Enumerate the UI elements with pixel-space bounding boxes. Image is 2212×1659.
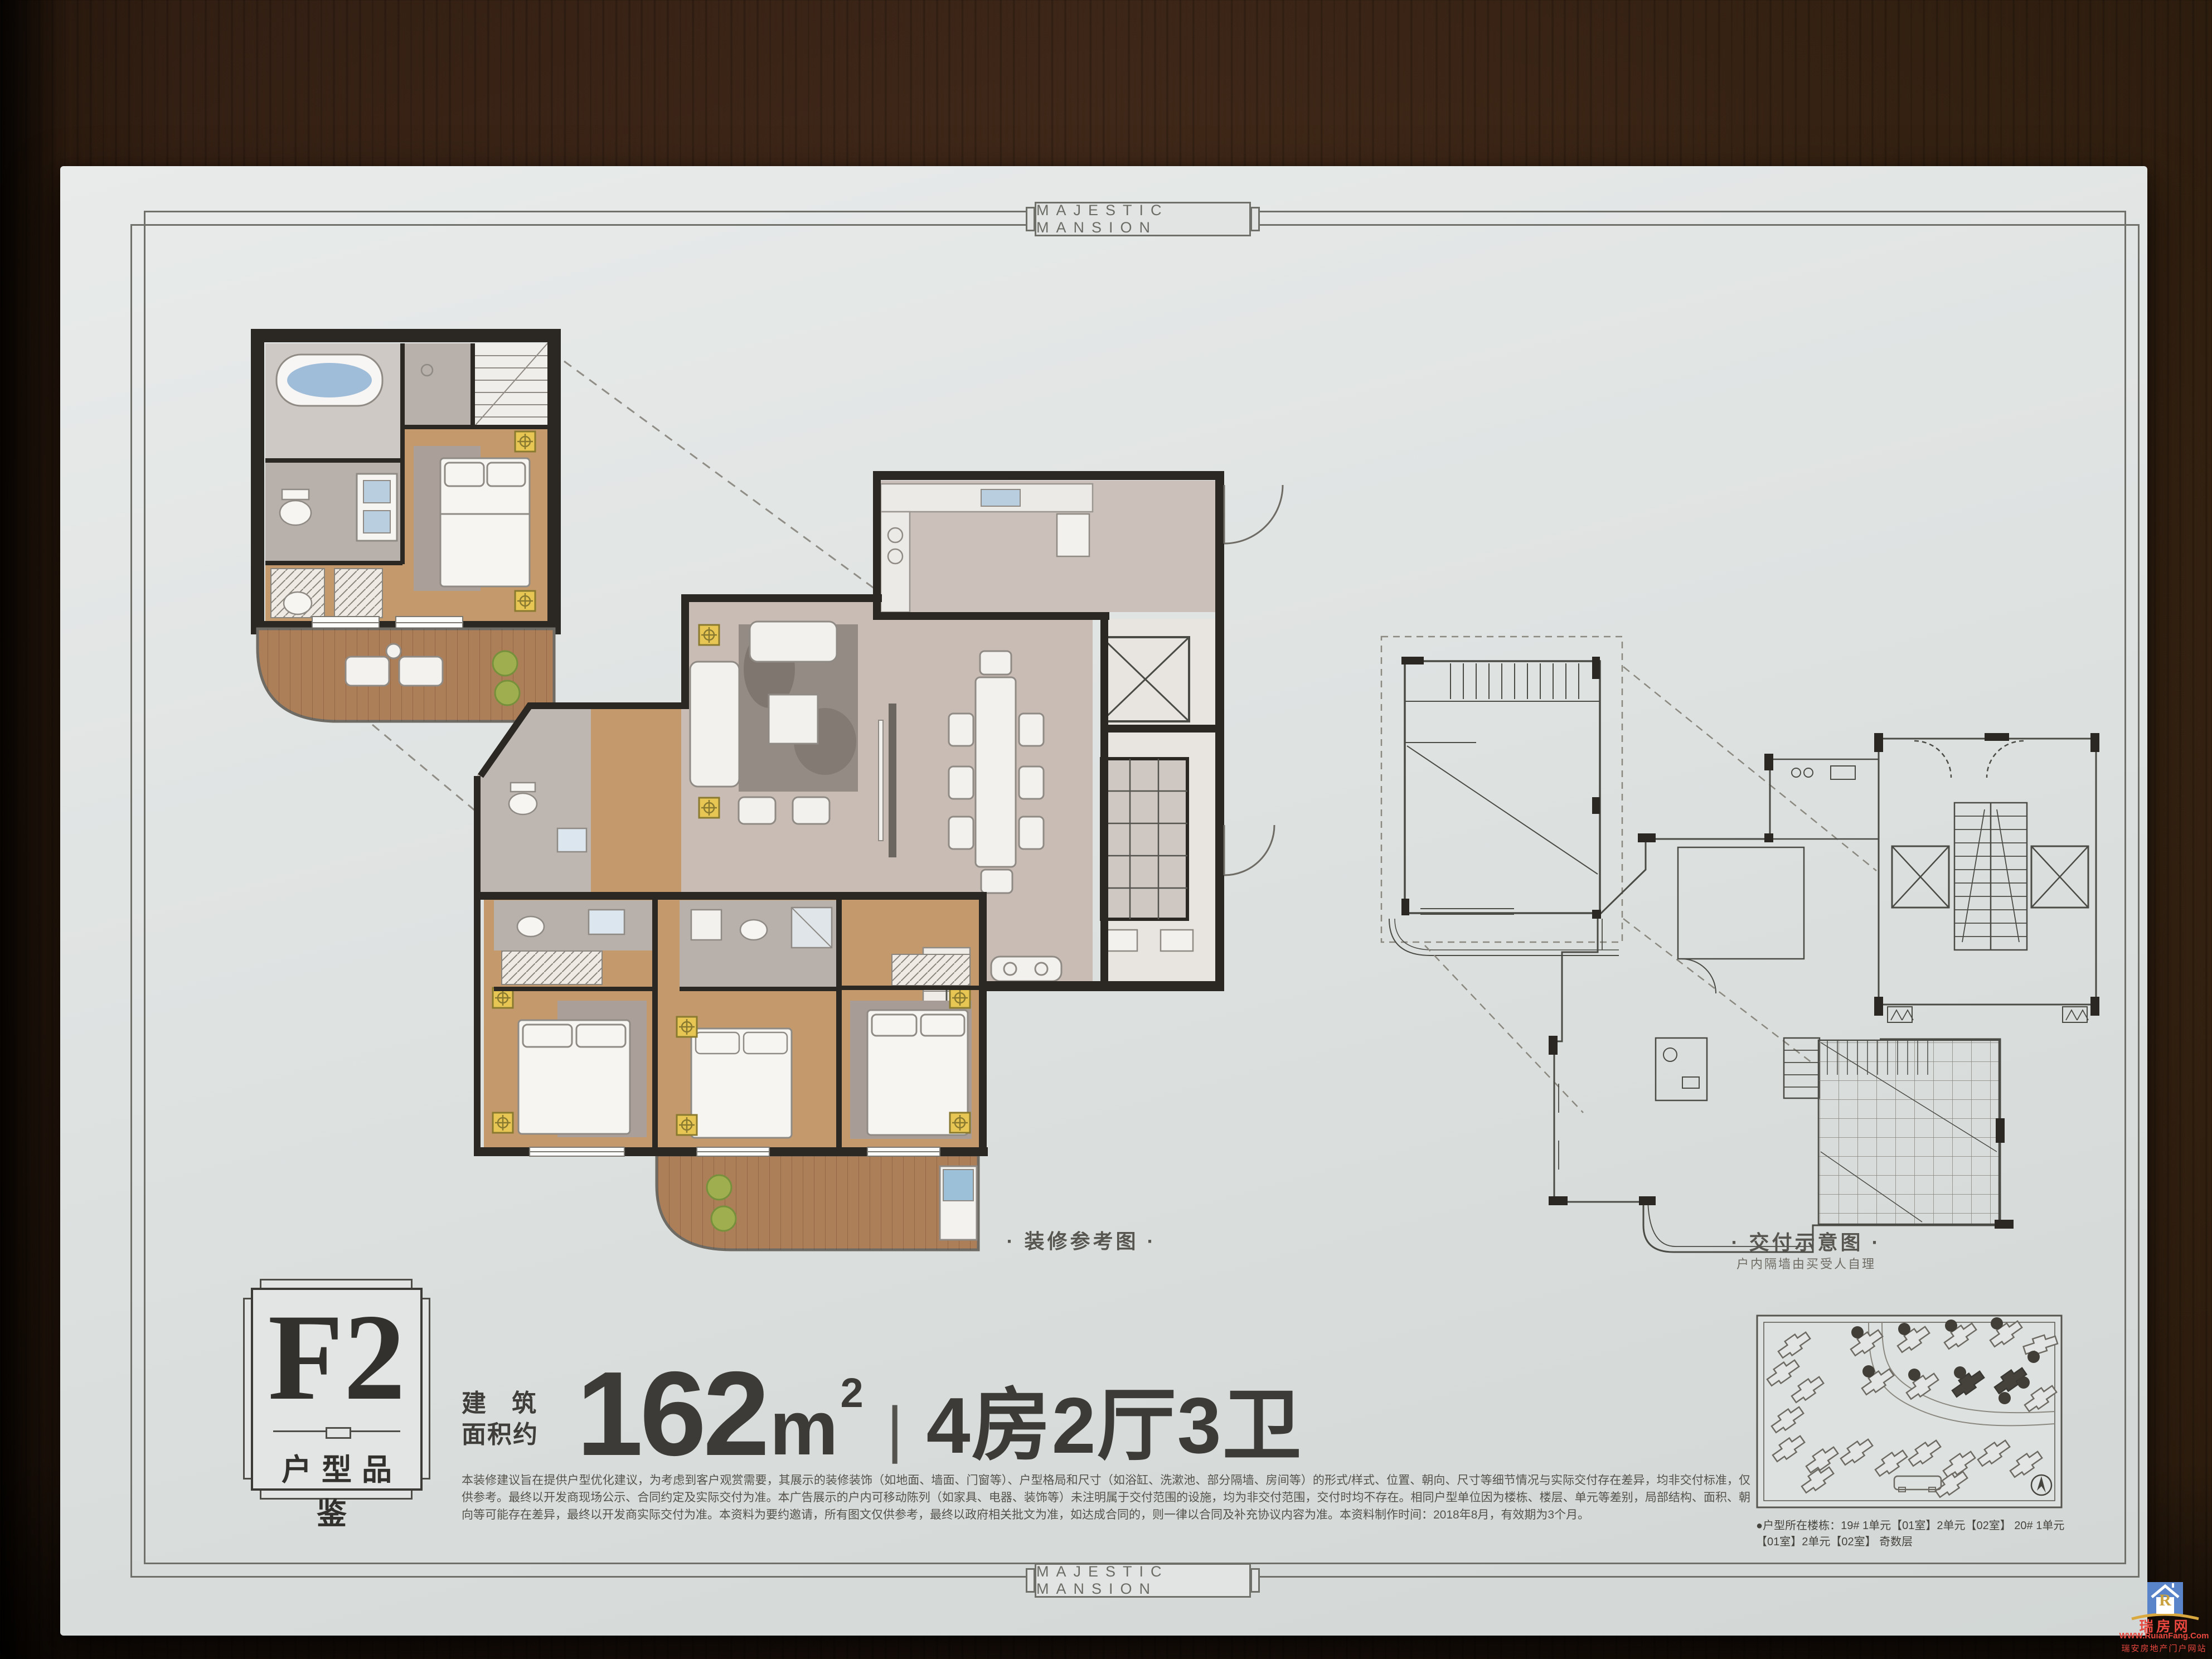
area-unit: m	[770, 1395, 838, 1462]
watermark-slogan: 瑞安房地产门户网站	[2108, 1642, 2212, 1654]
unit-tagline: 户型品鉴	[253, 1445, 420, 1533]
page-footer-title: MAJESTIC MANSION	[1035, 1563, 1251, 1598]
decorated-plan-caption: · 装修参考图 ·	[976, 1225, 1187, 1254]
watermark-url: WWW.RuianFang.Com	[2108, 1631, 2212, 1641]
delivery-floor-plan	[1381, 637, 2099, 1252]
main-floor-plan	[474, 471, 1283, 1250]
area-headline: 建筑 面积约 162 m 2 | 4房2厅3卫	[462, 1341, 1303, 1462]
area-unit-superscript: 2	[840, 1372, 863, 1414]
headline-separator: |	[887, 1401, 903, 1457]
delivery-plan-note: 户内隔墙由买受人自理	[1700, 1254, 1912, 1272]
master-suite-detail-plan	[258, 336, 554, 721]
emblem-box: F2 户型品鉴	[251, 1288, 423, 1491]
page-header-title: MAJESTIC MANSION	[1035, 202, 1251, 236]
watermark-logo-letter: R	[2159, 1591, 2171, 1609]
area-value: 162	[576, 1366, 767, 1462]
area-prefix: 建筑 面积约	[462, 1388, 562, 1451]
site-plan	[1757, 1316, 2061, 1507]
room-count: 4房2厅3卫	[926, 1390, 1303, 1462]
unit-emblem: F2 户型品鉴	[243, 1278, 430, 1498]
building-location-note: ●户型所在楼栋：19# 1单元【01室】2单元【02室】 20# 1单元【01室…	[1756, 1516, 2068, 1549]
emblem-divider	[273, 1430, 400, 1432]
unit-code: F2	[253, 1293, 420, 1422]
delivery-plan-caption: · 交付示意图 ·	[1700, 1226, 1912, 1255]
disclaimer-text: 本装修建议旨在提供户型优化建议，为考虑到客户观赏需要，其展示的装修装饰（如地面、…	[462, 1472, 1750, 1524]
